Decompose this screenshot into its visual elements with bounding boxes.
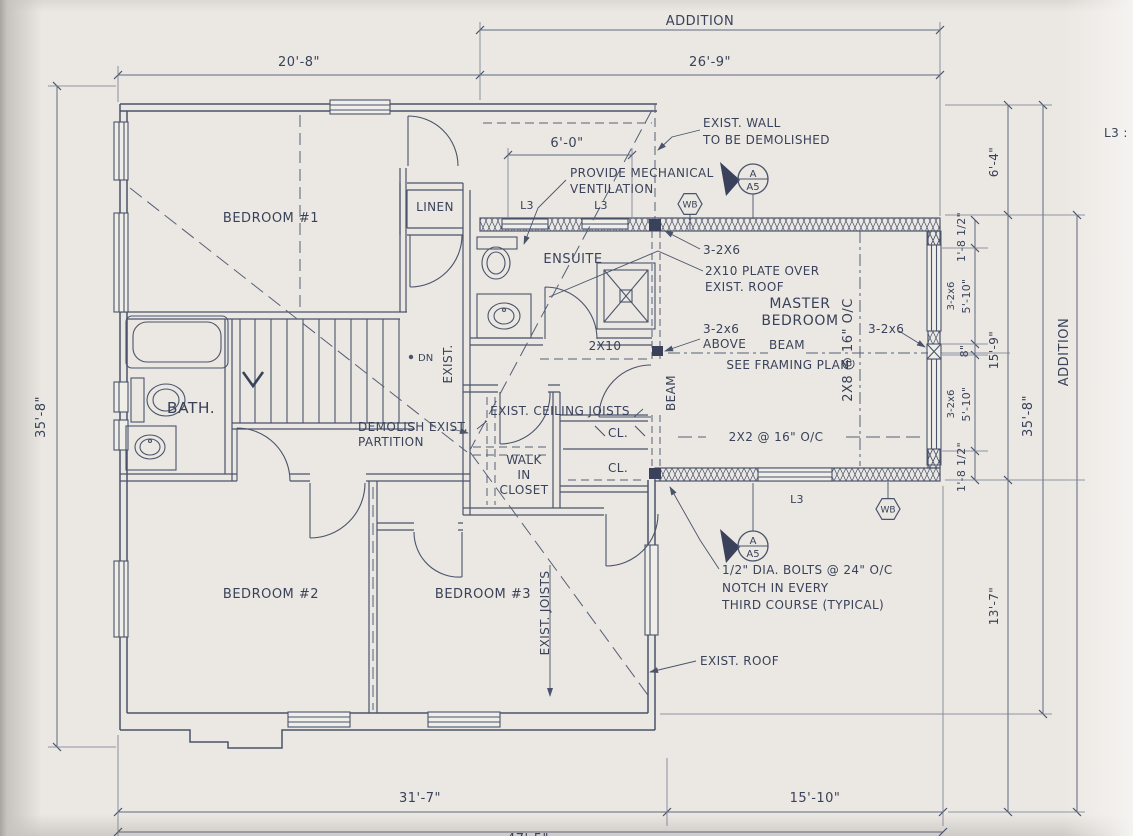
marker-l3-2: L3 [594, 199, 608, 212]
note-bolts-2: NOTCH IN EVERY [722, 581, 829, 595]
dim-addition-right: ADDITION [1057, 318, 1072, 386]
dim-1-8-half-top: 1'-8 1/2" [955, 212, 968, 262]
room-bath: BATH. [167, 399, 215, 417]
dim-26-9: 26'-9" [689, 55, 731, 70]
room-bedroom2: BEDROOM #2 [223, 587, 319, 602]
note-plate-1: 2X10 PLATE OVER [705, 264, 820, 278]
note-beam: BEAM [769, 338, 805, 352]
sink-vanity [126, 426, 176, 470]
note-plate-2: EXIST. ROOF [705, 280, 784, 294]
bath-fixtures [126, 316, 228, 470]
stair-down-arrow [243, 372, 263, 386]
note-exist-wall-2: TO BE DEMOLISHED [702, 133, 830, 147]
room-cl-2: CL. [608, 461, 628, 475]
stair-dn-dot [409, 355, 413, 359]
note-mech-vent-1: PROVIDE MECHANICAL [570, 166, 714, 180]
note-2x10: 2X10 [589, 339, 622, 353]
wb-label-top: WB [682, 201, 697, 211]
dim-35-8-left: 35'-8" [34, 396, 49, 438]
sink-vanity [477, 294, 531, 338]
note-demolish-1: DEMOLISH EXIST. [358, 420, 468, 434]
note-exist-vert: EXIST. [441, 344, 455, 383]
marker-l3-1: L3 [520, 199, 534, 212]
note-mech-vent-2: VENTILATION [570, 182, 654, 196]
note-post-above-2: ABOVE [703, 337, 746, 351]
floor-plan-drawing: ADDITION 20'-8" 26'-9" 6'-0" EXIST. WALL… [0, 0, 1133, 836]
section-a5-bottom: A5 [746, 549, 759, 560]
dim-5-10-b: 5'-10" [960, 387, 973, 422]
demolished-wall-lines [483, 104, 655, 218]
note-dn: DN [418, 353, 433, 364]
note-exist-roof: EXIST. ROOF [700, 654, 779, 668]
note-exist-wall-1: EXIST. WALL [703, 116, 781, 130]
room-cl-1: CL. [608, 426, 628, 440]
note-bolts-3: THIRD COURSE (TYPICAL) [721, 598, 884, 612]
note-see-framing: SEE FRAMING PLAN [726, 358, 849, 372]
room-bedroom3: BEDROOM #3 [435, 587, 531, 602]
stairs [232, 319, 415, 429]
dim-6-4: 6'-4" [987, 147, 1001, 177]
dim-13-7: 13'-7" [987, 587, 1001, 625]
section-a-bottom: A [750, 536, 757, 547]
dim-47-5: 47'-5" [507, 832, 549, 836]
room-wic-2: IN [517, 468, 530, 482]
note-demolish-2: PARTITION [358, 435, 424, 449]
room-wic-3: CLOSET [499, 483, 548, 497]
toilet-tank [131, 378, 144, 422]
dim-addition-top: ADDITION [666, 14, 734, 29]
dim-3-2x6-a: 3-2x6 [946, 282, 957, 311]
room-ensuite: ENSUITE [543, 252, 602, 267]
note-legend-partial: L3 : L [1104, 126, 1133, 140]
room-master-1: MASTER [769, 296, 830, 312]
note-beam-vert: BEAM [664, 375, 678, 411]
dim-15-10: 15'-10" [790, 791, 841, 806]
dim-6-0: 6'-0" [550, 136, 583, 151]
wb-label-bottom: WB [880, 506, 895, 516]
dim-15-9: 15'-9" [987, 331, 1001, 369]
note-bolts-1: 1/2" DIA. BOLTS @ 24" O/C [722, 563, 893, 577]
section-marker-bottom [720, 483, 768, 563]
note-rafters: 2X8 @ 16" O/C [841, 298, 856, 402]
room-bedroom1: BEDROOM #1 [223, 211, 319, 226]
dim-3-2x6-b: 3-2x6 [946, 390, 957, 419]
room-wic-1: WALK [506, 453, 542, 467]
room-master-2: BEDROOM [761, 313, 838, 329]
floor-plan-sheet: ADDITION 20'-8" 26'-9" 6'-0" EXIST. WALL… [0, 0, 1133, 836]
note-post-top: 3-2X6 [703, 243, 740, 257]
section-marker-top [720, 162, 768, 219]
note-post-above-1: 3-2x6 [703, 322, 739, 336]
dim-31-7: 31'-7" [399, 791, 441, 806]
dim-5-10-a: 5'-10" [960, 279, 973, 314]
note-post-mid: 3-2x6 [868, 322, 904, 336]
room-linen: LINEN [416, 200, 454, 214]
dim-20-8: 20'-8" [278, 55, 320, 70]
note-exist-joists: EXIST. JOISTS [538, 571, 552, 656]
note-strapping: 2X2 @ 16" O/C [729, 430, 824, 444]
marker-l3-3: L3 [790, 493, 804, 506]
section-a5-top: A5 [746, 182, 759, 193]
dim-8in: 8" [958, 345, 971, 358]
note-ceiling-joists: EXIST. CEILING JOISTS [490, 404, 630, 418]
section-a-top: A [750, 169, 757, 180]
dim-1-8-half-bottom: 1'-8 1/2" [955, 442, 968, 492]
dim-35-8-right: 35'-8" [1021, 395, 1036, 437]
